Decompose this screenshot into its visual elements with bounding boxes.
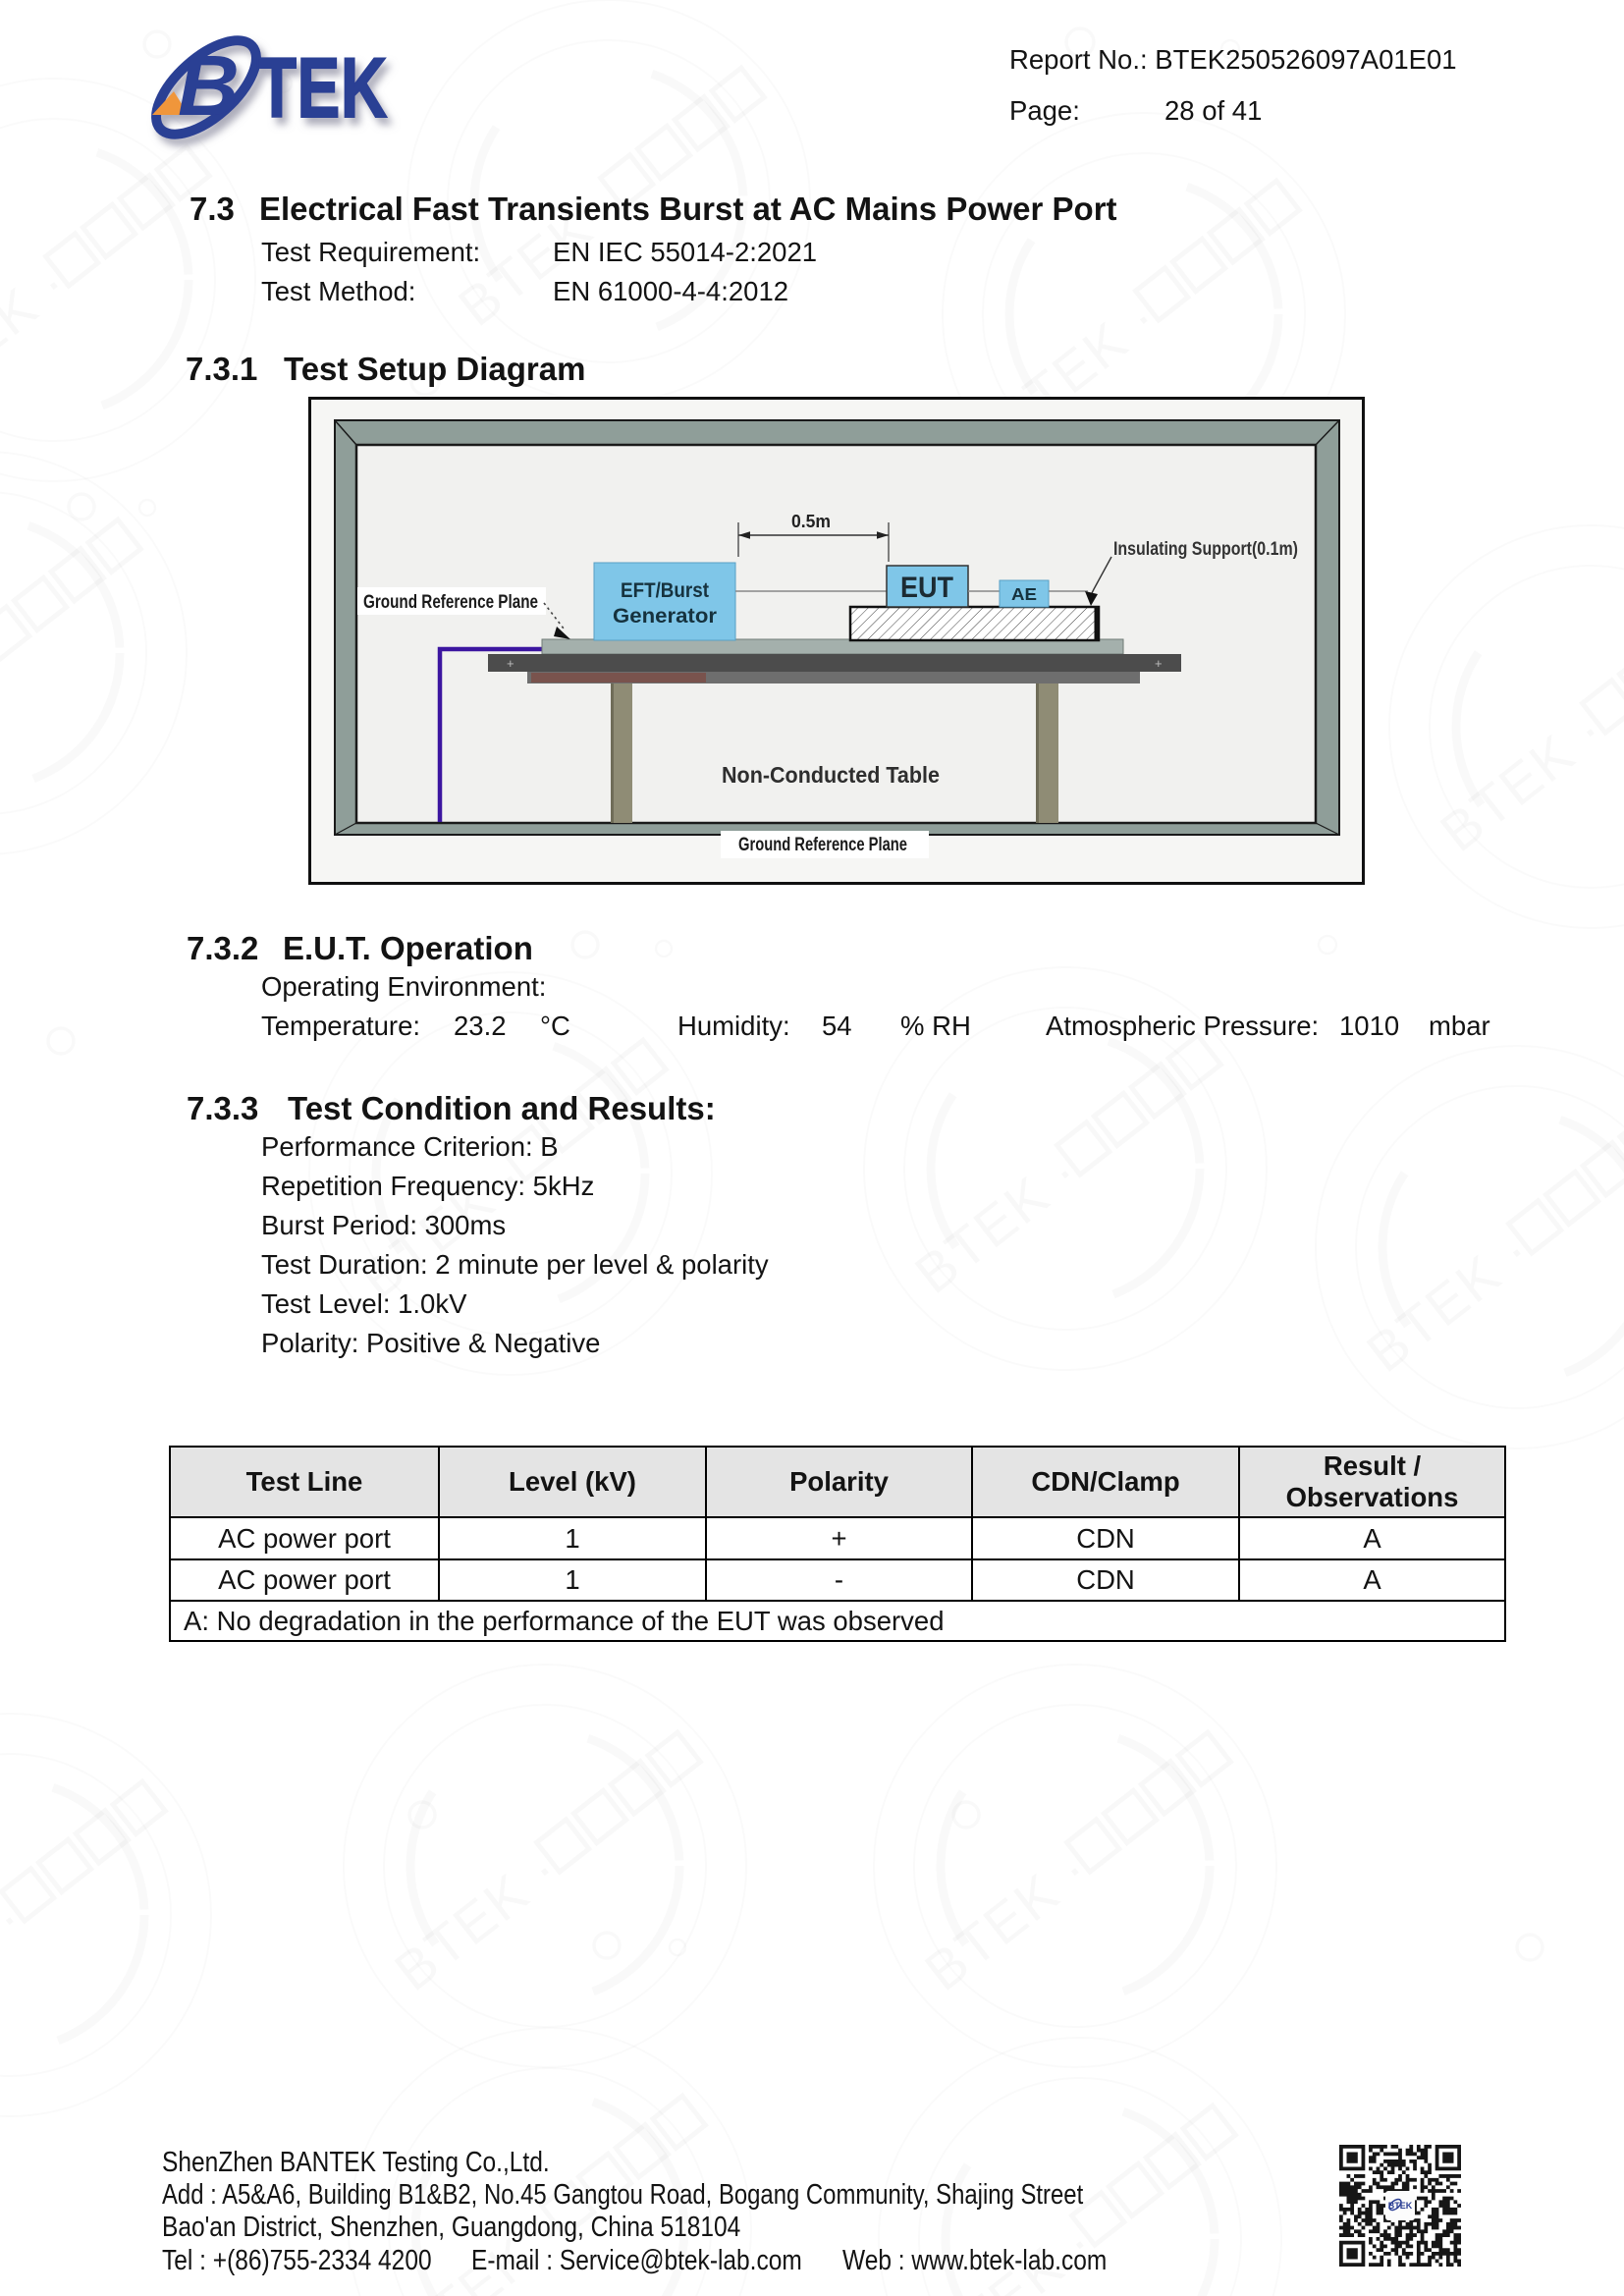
svg-text:Insulating Support(0.1m): Insulating Support(0.1m): [1113, 538, 1298, 560]
svg-text:+: +: [507, 656, 514, 671]
svg-text:Generator: Generator: [613, 605, 717, 628]
svg-text:0.5m: 0.5m: [791, 511, 831, 531]
svg-text:Ground Reference Plane: Ground Reference Plane: [363, 591, 538, 613]
svg-text:Ground Reference Plane: Ground Reference Plane: [738, 834, 907, 855]
svg-text:TEK: TEK: [257, 41, 388, 136]
svg-text:EUT: EUT: [900, 572, 953, 604]
svg-text:+: +: [1155, 656, 1163, 671]
svg-text:AE: AE: [1011, 584, 1037, 604]
svg-text:EFT/Burst: EFT/Burst: [621, 579, 709, 602]
svg-text:BTEK: BTEK: [1388, 2201, 1413, 2211]
svg-text:B: B: [178, 38, 240, 134]
svg-text:Non-Conducted Table: Non-Conducted Table: [722, 762, 940, 788]
